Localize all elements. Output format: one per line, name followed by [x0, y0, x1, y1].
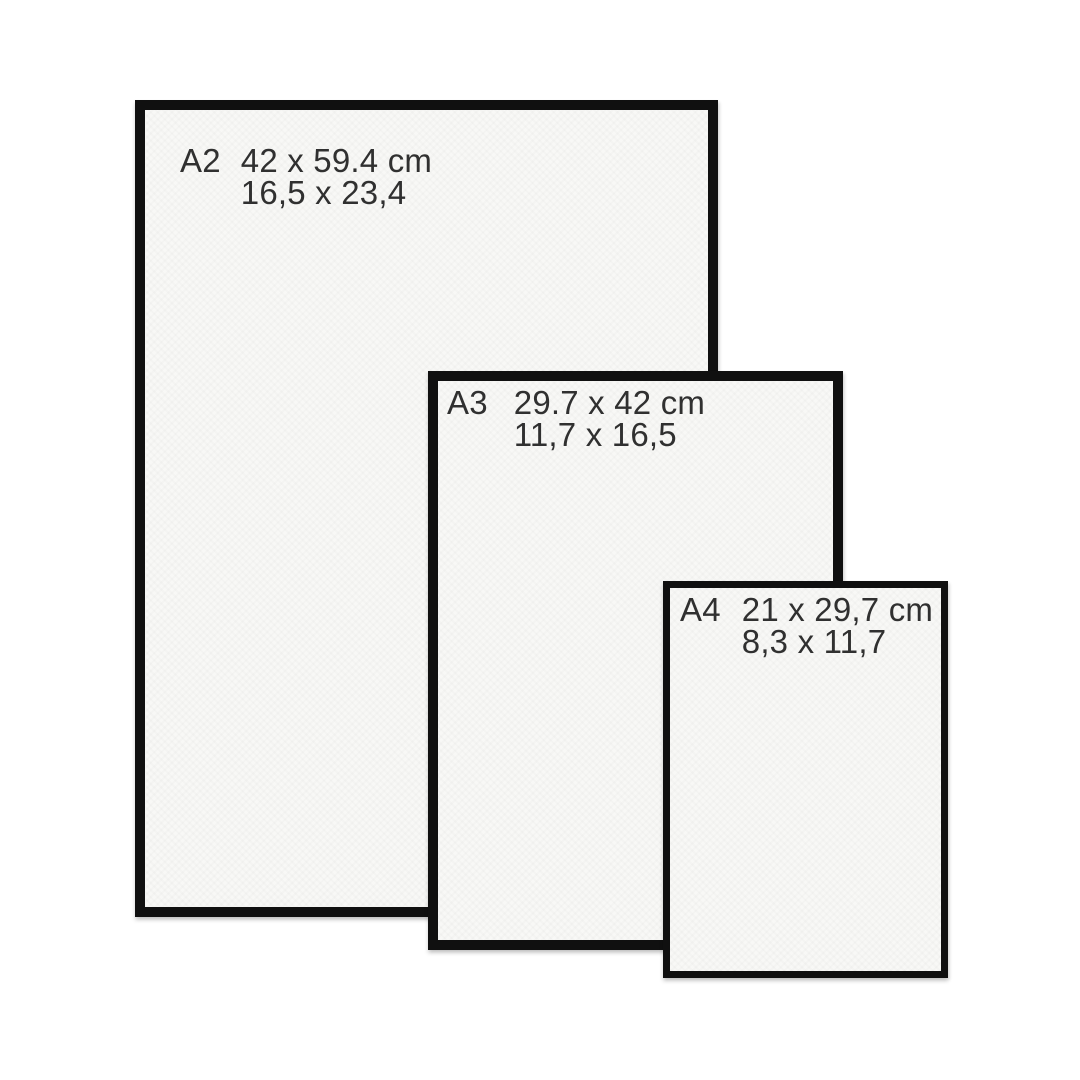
a3-size-code: A3 [447, 387, 488, 419]
a3-size-label: A3 29.7 x 42 cm 11,7 x 16,5 [447, 387, 705, 451]
a4-cm-dimensions: 21 x 29,7 cm [742, 594, 933, 626]
a3-dimensions: 29.7 x 42 cm 11,7 x 16,5 [514, 387, 705, 451]
a2-dimensions: 42 x 59.4 cm 16,5 x 23,4 [241, 145, 432, 209]
a2-cm-dimensions: 42 x 59.4 cm [241, 145, 432, 177]
a4-size-label: A4 21 x 29,7 cm 8,3 x 11,7 [680, 594, 933, 658]
a2-inch-dimensions: 16,5 x 23,4 [241, 177, 432, 209]
a4-dimensions: 21 x 29,7 cm 8,3 x 11,7 [742, 594, 933, 658]
a2-size-label: A2 42 x 59.4 cm 16,5 x 23,4 [180, 145, 432, 209]
a2-size-code: A2 [180, 145, 221, 177]
paper-size-guide: A2 42 x 59.4 cm 16,5 x 23,4 A3 29.7 x 42… [0, 0, 1080, 1080]
a4-inch-dimensions: 8,3 x 11,7 [742, 626, 933, 658]
a3-cm-dimensions: 29.7 x 42 cm [514, 387, 705, 419]
a4-size-code: A4 [680, 594, 721, 626]
a3-inch-dimensions: 11,7 x 16,5 [514, 419, 705, 451]
frame-a4: A4 21 x 29,7 cm 8,3 x 11,7 [663, 581, 948, 978]
